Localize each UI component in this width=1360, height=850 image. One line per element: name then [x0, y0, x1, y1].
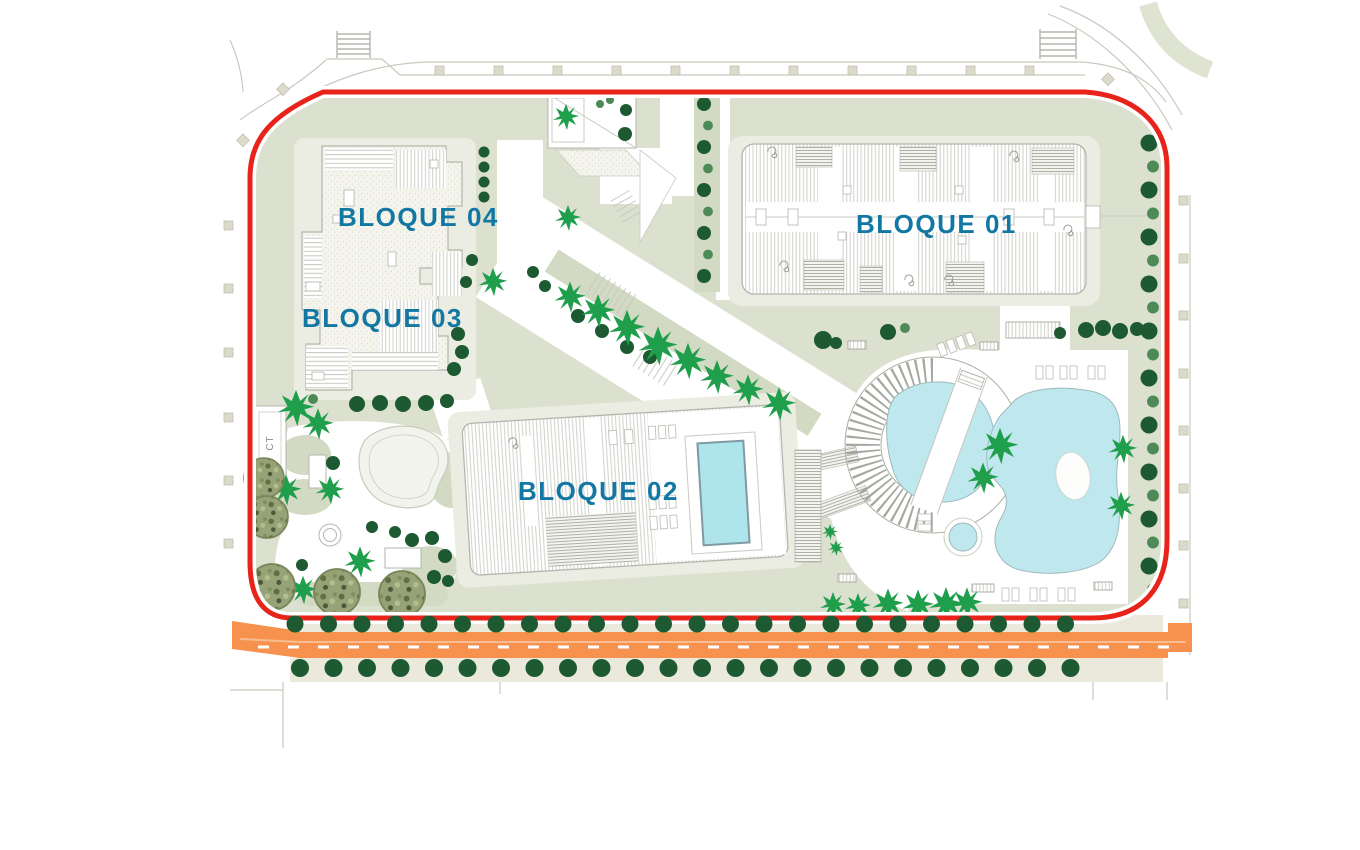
site-plan: CT [0, 0, 1360, 850]
tree [1141, 417, 1158, 434]
crosswalk-icon-top-left [337, 31, 370, 58]
tree [861, 659, 879, 677]
tree [320, 616, 337, 633]
tree [697, 226, 711, 240]
tree [703, 207, 713, 217]
spa-pool [949, 523, 977, 551]
tree [392, 659, 410, 677]
tree [1057, 616, 1074, 633]
bloque-02-label: BLOQUE 02 [518, 476, 679, 506]
tree [459, 659, 477, 677]
tree [588, 616, 605, 633]
tree [894, 659, 912, 677]
bloque-04-03-building [294, 138, 476, 400]
tree [990, 616, 1007, 633]
tree [1024, 616, 1041, 633]
tree [760, 659, 778, 677]
tree [1147, 537, 1159, 549]
bloque-04-label: BLOQUE 04 [338, 202, 499, 232]
tree [722, 616, 739, 633]
tree [325, 659, 343, 677]
tree [1147, 255, 1159, 267]
tree [697, 183, 711, 197]
tree [1147, 490, 1159, 502]
tree [387, 616, 404, 633]
tree [789, 616, 806, 633]
tree [697, 97, 711, 111]
tree [923, 616, 940, 633]
tree [957, 616, 974, 633]
tree [492, 659, 510, 677]
corner-path-arc [1148, 4, 1210, 70]
tree [689, 616, 706, 633]
tree [1141, 323, 1158, 340]
tree [1141, 276, 1158, 293]
tree [559, 659, 577, 677]
tree [1147, 349, 1159, 361]
bloque-01-label: BLOQUE 01 [856, 209, 1017, 239]
bloque-03-label: BLOQUE 03 [302, 303, 463, 333]
rooftop-pool [697, 441, 749, 546]
tree [1147, 302, 1159, 314]
tree [358, 659, 376, 677]
crosswalk-icon-top-right [1040, 29, 1076, 59]
tree [1141, 511, 1158, 528]
tree [995, 659, 1013, 677]
site-plan-canvas: CT [0, 0, 1360, 850]
tree [1141, 229, 1158, 246]
tree [1028, 659, 1046, 677]
tree [703, 164, 713, 174]
tree [655, 616, 672, 633]
tree [454, 616, 471, 633]
tree [488, 616, 505, 633]
tree [1141, 182, 1158, 199]
tree [961, 659, 979, 677]
tree [287, 616, 304, 633]
tree [727, 659, 745, 677]
tree [1062, 659, 1080, 677]
tree [1147, 396, 1159, 408]
road [298, 632, 1168, 658]
tree [626, 659, 644, 677]
tree [521, 616, 538, 633]
tree [1147, 443, 1159, 455]
ct-label: CT [265, 435, 276, 450]
tree [703, 250, 713, 260]
tree [703, 121, 713, 131]
tree [794, 659, 812, 677]
tree [593, 659, 611, 677]
tree [693, 659, 711, 677]
tree [555, 616, 572, 633]
tree [1141, 558, 1158, 575]
tree [291, 659, 309, 677]
main-pool [987, 388, 1120, 573]
tree [1147, 161, 1159, 173]
tree [697, 140, 711, 154]
tree [425, 659, 443, 677]
tree [928, 659, 946, 677]
bench-platform [385, 548, 421, 568]
pond [359, 426, 448, 508]
tree [421, 616, 438, 633]
tree [697, 269, 711, 283]
tree [1141, 370, 1158, 387]
street [232, 615, 1192, 682]
tree [890, 616, 907, 633]
tree [827, 659, 845, 677]
tree [660, 659, 678, 677]
tree [622, 616, 639, 633]
tree [756, 616, 773, 633]
pergola [795, 450, 821, 562]
tree [823, 616, 840, 633]
tree [1147, 208, 1159, 220]
road-right-end [1168, 623, 1192, 652]
tree [526, 659, 544, 677]
tree [354, 616, 371, 633]
tree [1141, 464, 1158, 481]
tree [856, 616, 873, 633]
